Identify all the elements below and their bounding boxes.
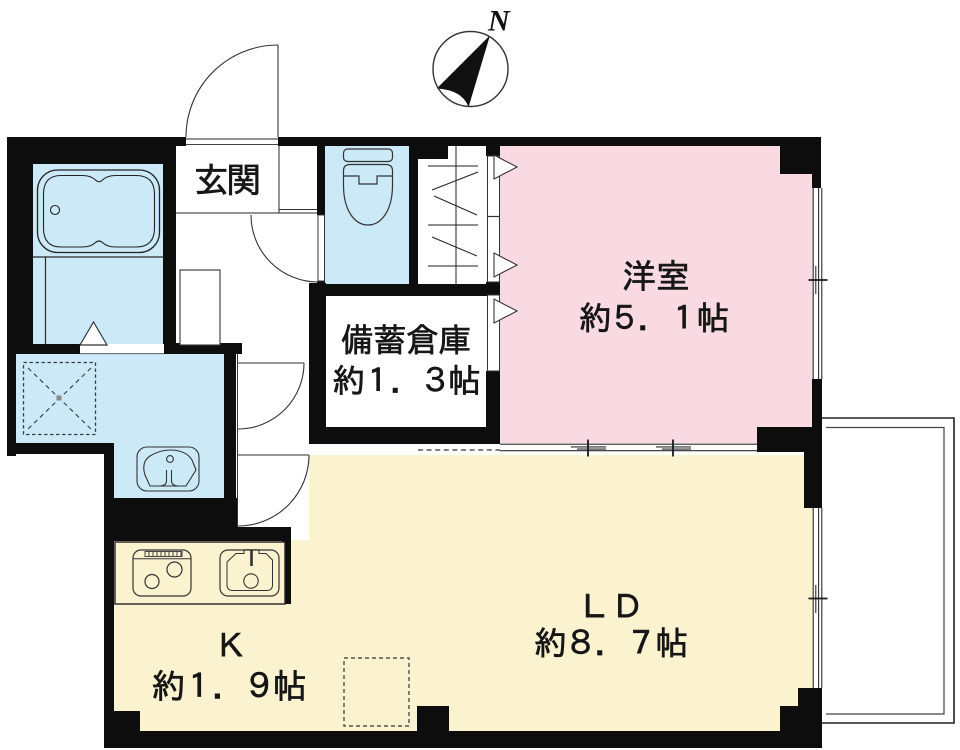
- svg-text:N: N: [487, 5, 511, 38]
